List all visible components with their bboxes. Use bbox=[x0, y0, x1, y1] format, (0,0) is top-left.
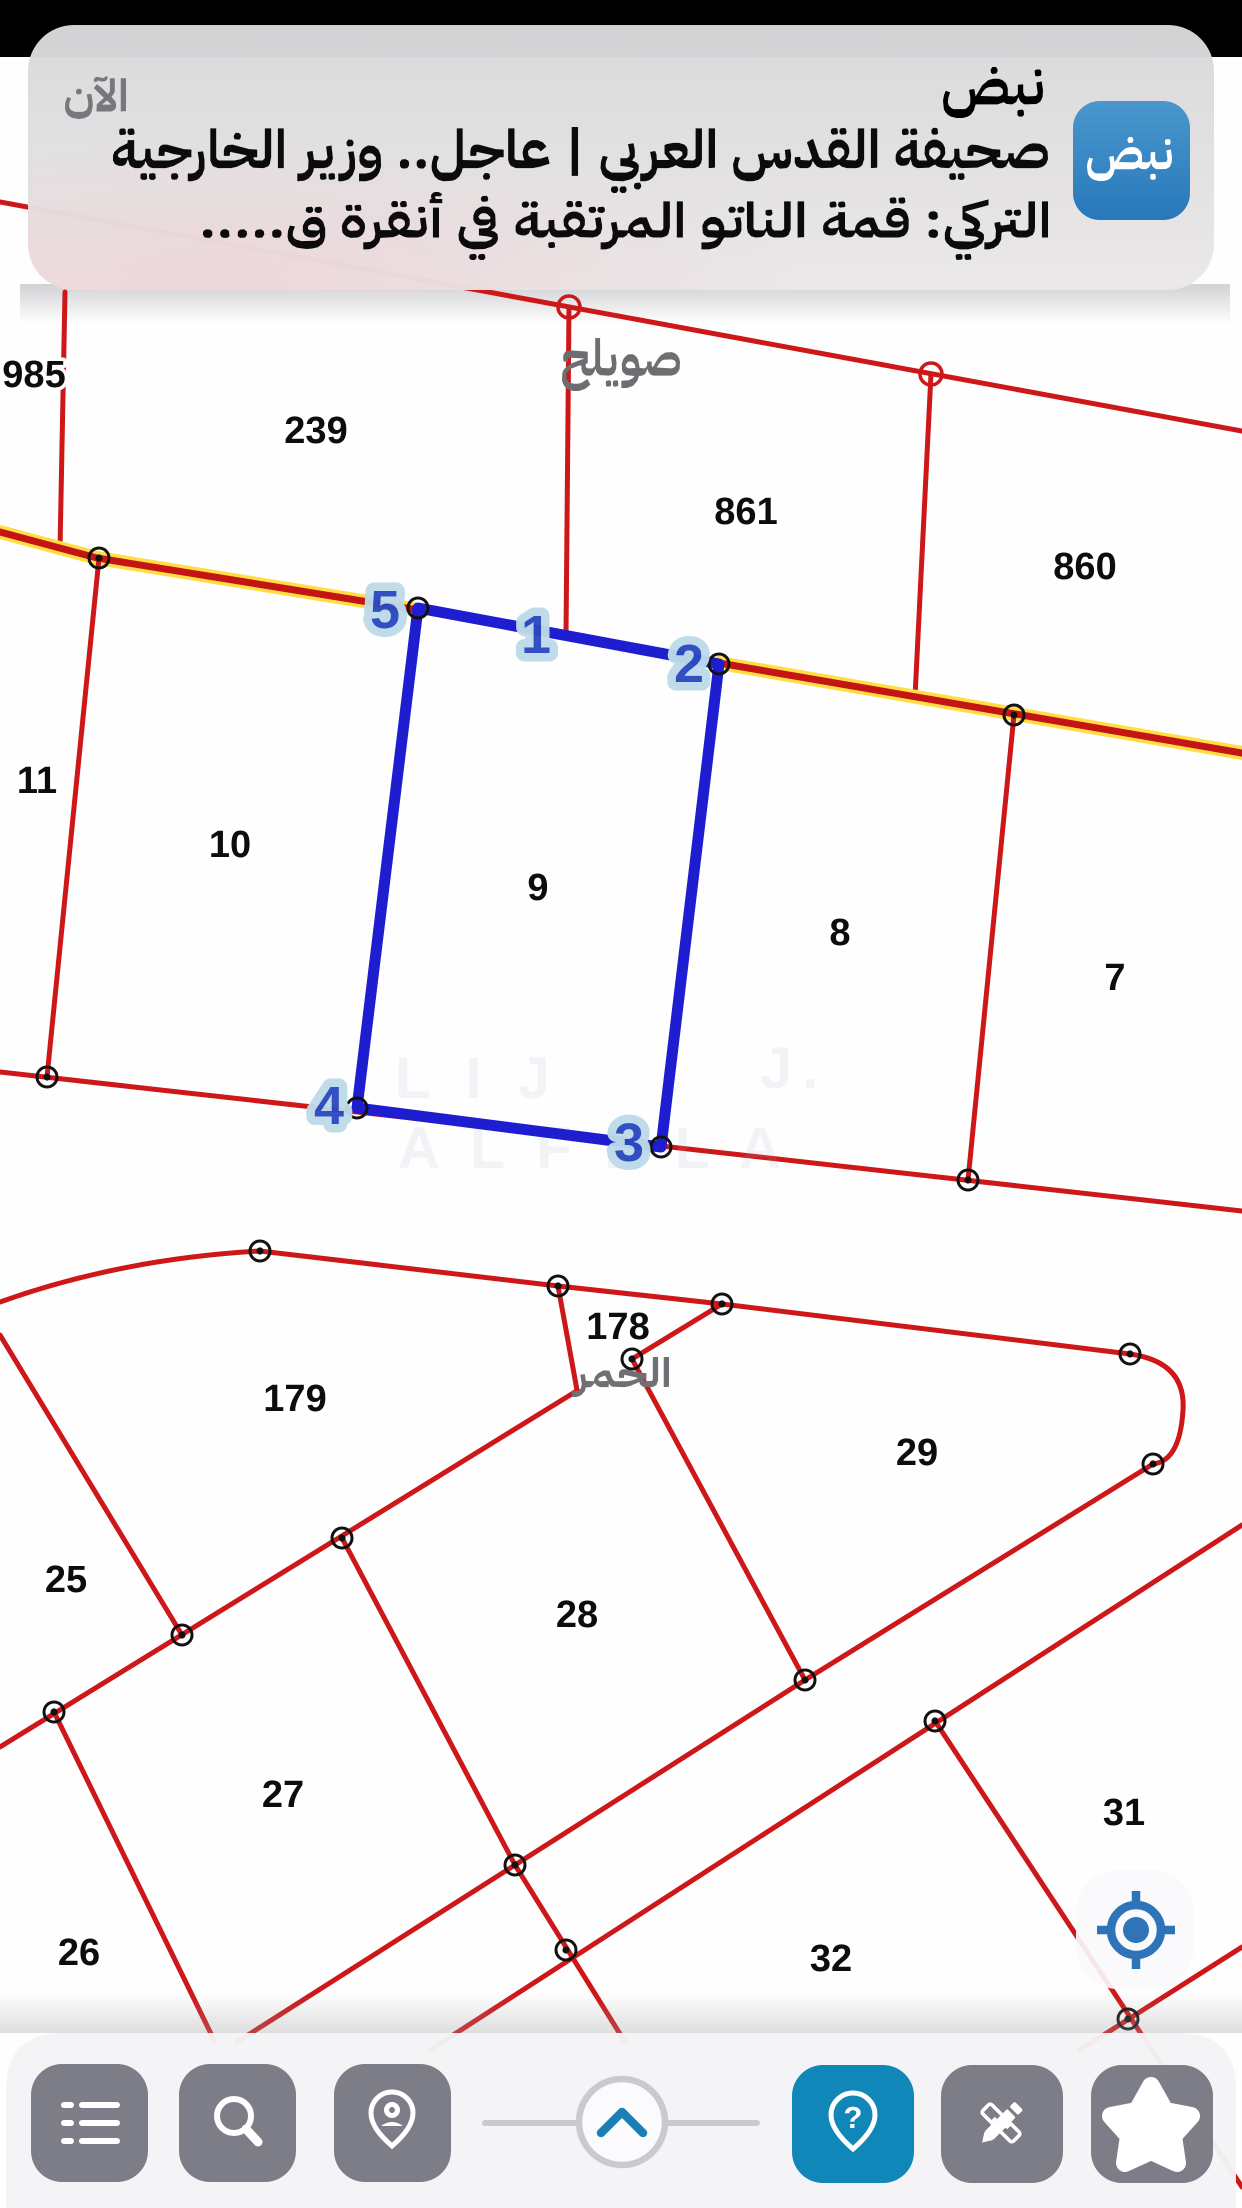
svg-text:3: 3 bbox=[614, 1113, 644, 1173]
svg-text:31: 31 bbox=[1103, 1792, 1145, 1834]
svg-text:32: 32 bbox=[810, 1938, 852, 1980]
svg-text:861: 861 bbox=[714, 491, 777, 533]
svg-text:25: 25 bbox=[45, 1559, 87, 1601]
svg-text:11: 11 bbox=[17, 760, 57, 802]
svg-text:4: 4 bbox=[314, 1076, 344, 1136]
svg-text:9: 9 bbox=[527, 867, 548, 909]
svg-text:28: 28 bbox=[556, 1594, 598, 1636]
svg-text:2: 2 bbox=[674, 634, 704, 694]
svg-text:239: 239 bbox=[284, 410, 347, 452]
svg-text:7: 7 bbox=[1104, 957, 1125, 999]
svg-text:860: 860 bbox=[1053, 546, 1116, 588]
svg-text:?: ? bbox=[844, 2100, 863, 2135]
svg-text:L I J: L I J bbox=[395, 1046, 560, 1111]
svg-text:985: 985 bbox=[2, 354, 65, 396]
svg-text:179: 179 bbox=[263, 1378, 326, 1420]
svg-text:29: 29 bbox=[896, 1432, 938, 1474]
svg-text:J.: J. bbox=[760, 1036, 828, 1101]
svg-text:178: 178 bbox=[586, 1306, 649, 1348]
svg-text:27: 27 bbox=[262, 1774, 304, 1816]
svg-text:10: 10 bbox=[209, 824, 251, 866]
svg-text:8: 8 bbox=[829, 912, 850, 954]
svg-text:26: 26 bbox=[58, 1932, 100, 1974]
svg-text:1: 1 bbox=[521, 605, 551, 665]
svg-text:5: 5 bbox=[370, 580, 400, 640]
